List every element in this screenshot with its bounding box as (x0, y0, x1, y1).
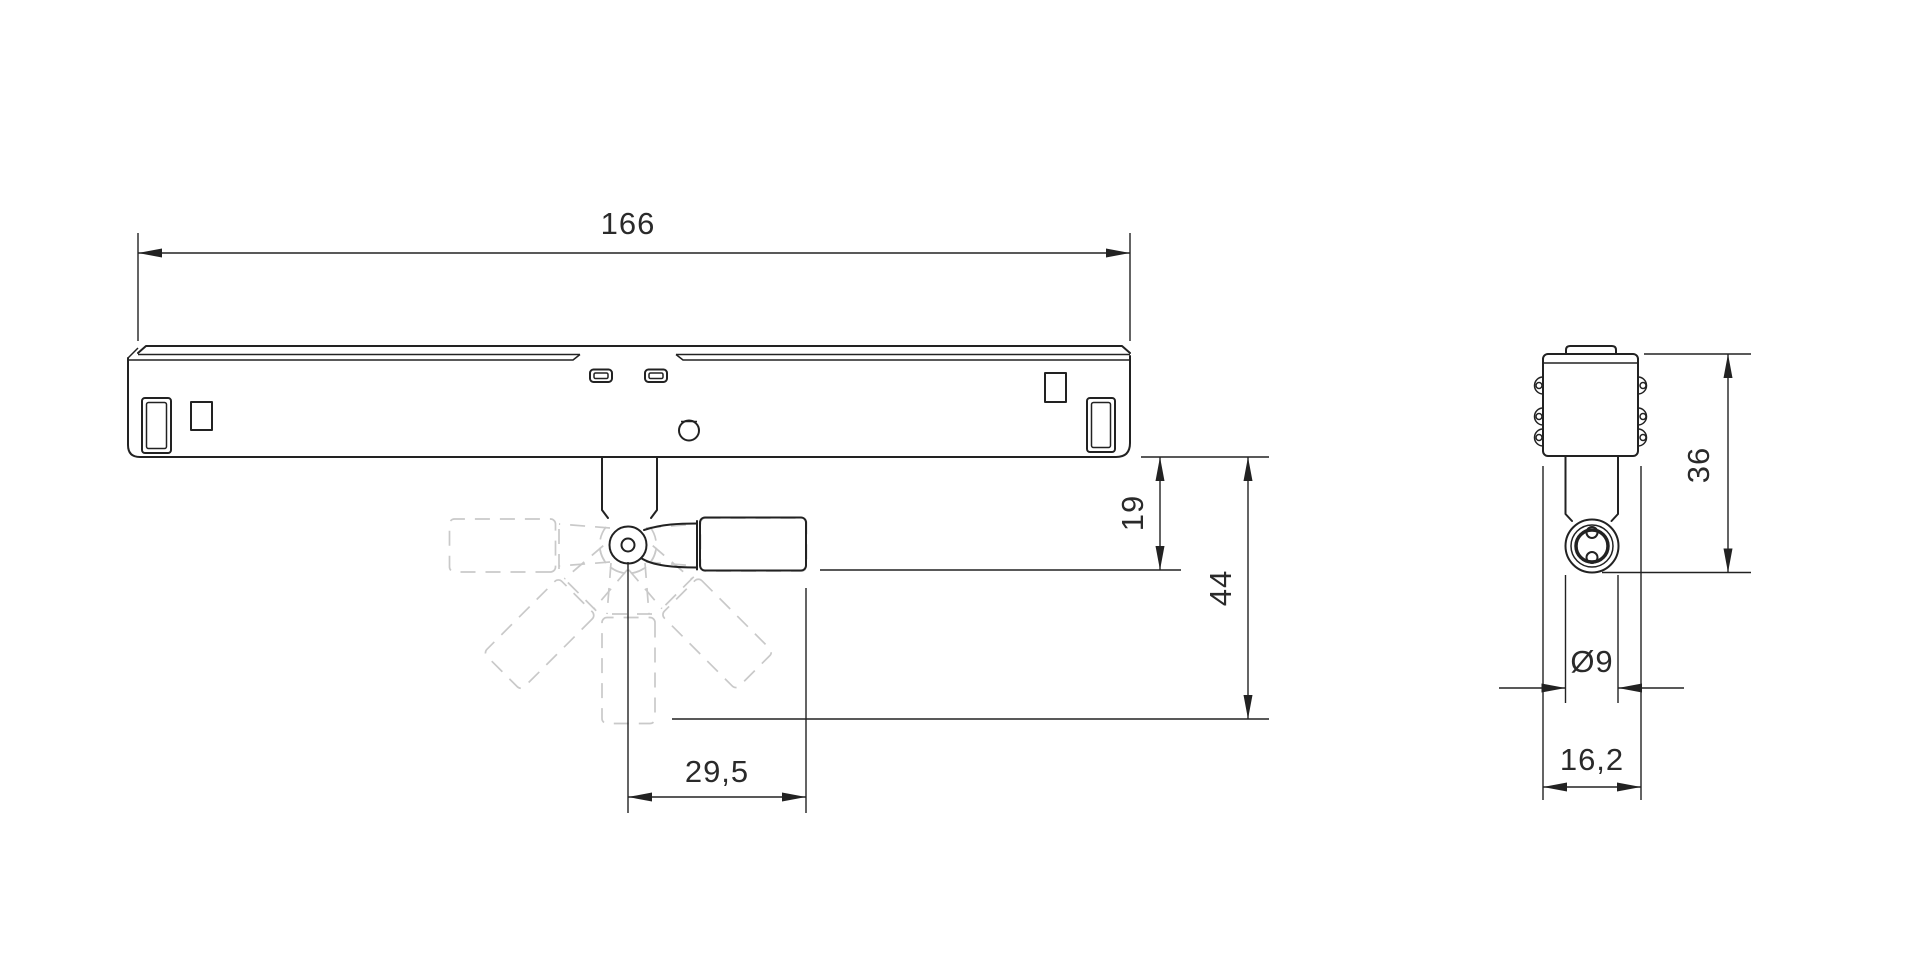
dim-label-total-drop: 44 (1203, 570, 1238, 606)
rail-slots-middle (590, 370, 667, 383)
dim-label-pivot-drop: 19 (1115, 495, 1150, 531)
technical-drawing: 166 19 44 29,5 (0, 0, 1920, 962)
pivot-arm (641, 518, 806, 571)
rail-hole-left (191, 402, 212, 430)
dim-label-arm-reach: 29,5 (685, 754, 749, 789)
front-view: 166 19 44 29,5 (128, 206, 1269, 813)
dimension-barrel-diameter: Ø9 (1499, 575, 1684, 703)
dim-label-side-height: 36 (1681, 447, 1716, 483)
dim-label-side-width: 16,2 (1560, 742, 1624, 777)
dimension-side-height: 36 (1602, 354, 1751, 573)
rail-slot-left (142, 398, 171, 453)
pivot-barrel (1566, 520, 1619, 573)
dimension-total-drop: 44 (672, 457, 1269, 719)
dimension-pivot-drop: 19 (820, 457, 1269, 570)
dimension-side-width: 16,2 (1543, 466, 1641, 800)
spring-coils (1535, 377, 1647, 446)
pivot-stem (602, 457, 657, 518)
dim-label-overall-length: 166 (601, 206, 656, 241)
side-view: 36 Ø9 16,2 (1499, 346, 1751, 800)
drawing-canvas: 166 19 44 29,5 (0, 0, 1920, 962)
dim-label-barrel-diameter: Ø9 (1570, 644, 1613, 679)
dimension-overall-length: 166 (138, 206, 1130, 341)
rail-hole-right (1045, 373, 1066, 402)
side-stem (1566, 456, 1619, 521)
rail-screw (679, 421, 699, 441)
housing-block (1543, 346, 1638, 456)
rail-body (128, 346, 1130, 457)
rail-slot-right (1087, 398, 1115, 452)
